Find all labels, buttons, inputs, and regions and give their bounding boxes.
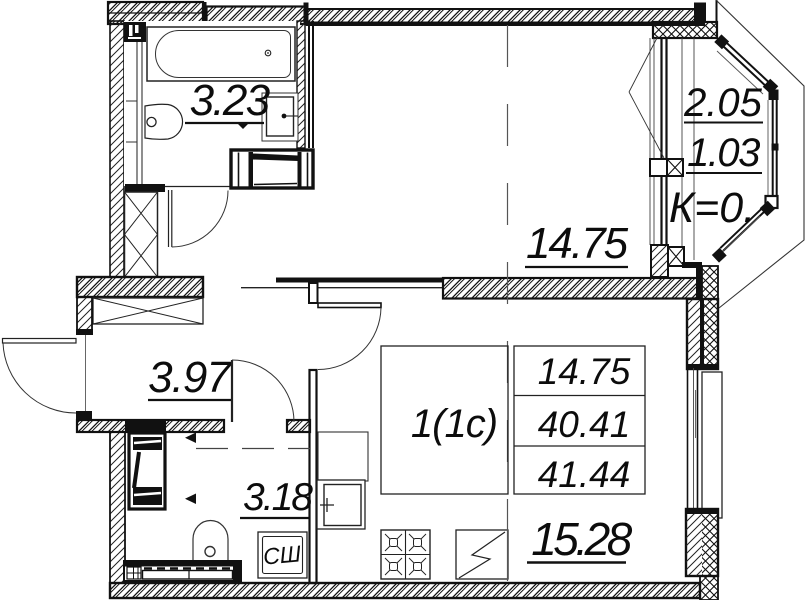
svg-text:3.23: 3.23 — [190, 76, 271, 125]
svg-text:1(1с): 1(1с) — [411, 402, 497, 446]
svg-text:К=0.: К=0. — [669, 184, 755, 232]
svg-text:СШ: СШ — [262, 540, 303, 569]
svg-text:2.05: 2.05 — [683, 81, 763, 125]
svg-text:14.75: 14.75 — [538, 351, 631, 392]
svg-text:3.18: 3.18 — [243, 476, 313, 519]
svg-text:3.97: 3.97 — [148, 353, 232, 402]
svg-text:1.03: 1.03 — [687, 131, 760, 175]
svg-text:40.41: 40.41 — [538, 404, 631, 445]
svg-text:14.75: 14.75 — [526, 219, 629, 268]
svg-text:41.44: 41.44 — [538, 454, 631, 495]
svg-text:15.28: 15.28 — [531, 513, 633, 565]
